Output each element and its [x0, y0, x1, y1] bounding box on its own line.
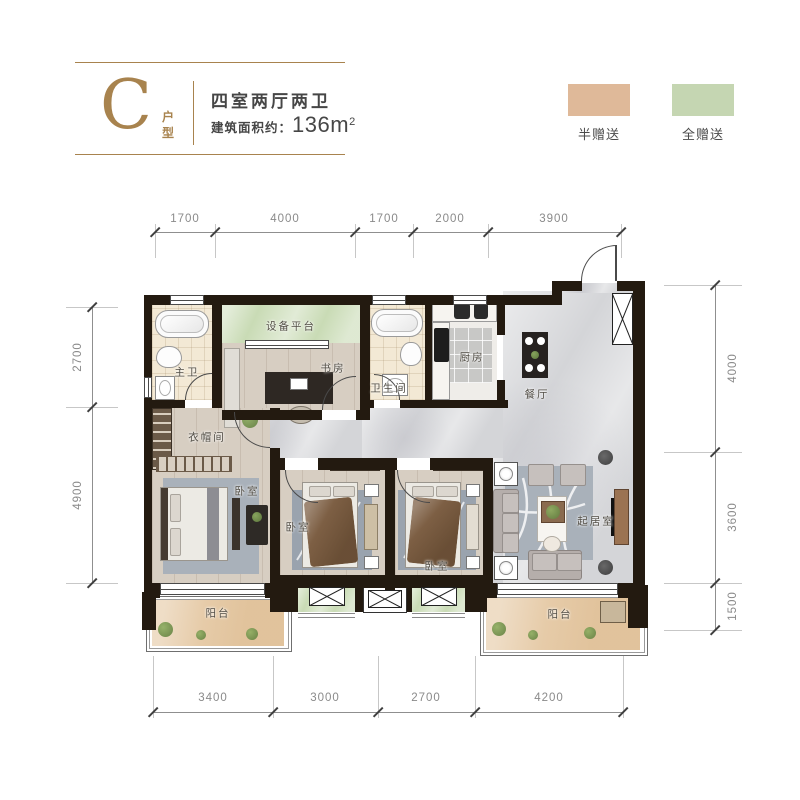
sofa-left: [493, 489, 519, 553]
room-label-kitchen: 厨房: [460, 350, 485, 365]
dim-label: 4000: [727, 353, 739, 383]
pillow: [170, 528, 181, 556]
sofa-bottom: [528, 550, 582, 580]
wall: [368, 400, 374, 408]
corridor-floor: [362, 408, 503, 458]
sofa-cushion: [502, 493, 519, 513]
lamp-table: [494, 462, 518, 486]
room-label-dining: 餐厅: [525, 387, 550, 402]
headboard: [161, 488, 168, 560]
tv-console: [614, 489, 629, 545]
balcony-cabinet: [600, 601, 626, 623]
sink-basin-2: [474, 303, 488, 319]
sink-basin-1: [454, 303, 470, 319]
plate: [537, 364, 545, 372]
wall: [355, 575, 363, 612]
dim-label: 4200: [534, 692, 564, 704]
dimension-line-right: [715, 285, 716, 630]
dim-label: 1700: [170, 213, 200, 225]
dimension-line-left: [92, 307, 93, 583]
extension-line: [664, 452, 742, 453]
lamp-table: [494, 556, 518, 580]
wall: [633, 281, 645, 601]
dimension-line-top: [155, 232, 621, 233]
wall: [150, 295, 555, 305]
room-label-equipment-platform: 设备平台: [266, 319, 316, 334]
room-label-study: 书房: [321, 361, 346, 376]
nightstand: [466, 484, 480, 497]
wall: [144, 295, 152, 600]
bed-throw: [207, 488, 219, 560]
plate: [525, 337, 533, 345]
nightstand: [466, 556, 480, 569]
crossed-box-icon: [309, 587, 345, 606]
pillow: [436, 486, 458, 497]
bed-master: [160, 487, 228, 561]
wall: [270, 448, 280, 595]
window: [245, 340, 329, 349]
ottoman: [543, 536, 561, 552]
extension-line: [664, 285, 742, 286]
room-label-bedroom3: 卧室: [425, 559, 450, 574]
balcony-door-window: [497, 583, 618, 595]
toilet-2: [400, 342, 422, 366]
dim-label: 2700: [72, 342, 84, 372]
extension-line: [664, 630, 742, 631]
balcony-plant: [584, 627, 596, 639]
wall: [558, 281, 582, 291]
window: [453, 295, 487, 305]
room-label-cloakroom: 衣帽间: [188, 430, 226, 445]
room-label-master-bath: 主卫: [175, 365, 200, 380]
sofa-cushion: [532, 553, 557, 571]
table-plant: [531, 351, 539, 359]
window: [170, 295, 204, 305]
balcony-plant: [196, 630, 206, 640]
window-sill: [298, 613, 355, 620]
floorplan-page: { "header": { "unit_letter": "C", "unit_…: [0, 0, 800, 800]
crossed-box-icon: [421, 587, 457, 606]
dim-label: 3900: [539, 213, 569, 225]
wall: [497, 380, 505, 408]
door-leaf-entry: [615, 245, 617, 281]
dim-label: 4000: [270, 213, 300, 225]
armchair: [560, 464, 586, 486]
wall: [142, 592, 156, 630]
balcony-plant: [492, 622, 506, 636]
door-arc-entry: [581, 245, 617, 281]
plant-dark: [598, 450, 613, 465]
room-label-master-bedroom: 卧室: [235, 484, 260, 499]
dim-label: 1700: [369, 213, 399, 225]
dim-label: 3000: [310, 692, 340, 704]
balcony-plant: [246, 628, 258, 640]
wall: [212, 295, 222, 408]
window: [144, 377, 152, 398]
plant-dark: [598, 560, 613, 575]
wall: [265, 583, 285, 598]
armchair: [528, 464, 554, 486]
wall: [356, 410, 370, 420]
bathtub-2: [371, 309, 423, 337]
plant: [252, 512, 262, 522]
blanket: [304, 497, 359, 568]
dim-label: 2700: [411, 692, 441, 704]
dim-label: 4900: [72, 480, 84, 510]
sofa-cushion: [502, 533, 519, 553]
ac-crossed-box-icon: [368, 590, 402, 608]
plate: [537, 337, 545, 345]
room-label-bathroom: 卫生间: [370, 381, 408, 396]
dim-label: 3600: [727, 502, 739, 532]
dim-label: 1500: [727, 591, 739, 621]
extension-line: [664, 583, 742, 584]
wall: [483, 583, 497, 598]
dim-label: 3400: [198, 692, 228, 704]
wall: [497, 295, 505, 335]
dimension-line-bottom: [153, 712, 623, 713]
balcony-plant: [158, 622, 173, 637]
monitor: [290, 378, 308, 390]
flue-crossed-box-icon: [612, 293, 633, 345]
nightstand: [364, 556, 379, 569]
room-label-balcony-left: 阳台: [206, 606, 231, 621]
balcony-door-window: [160, 583, 265, 595]
wall: [628, 585, 648, 628]
window-sill: [412, 613, 465, 620]
dining-table: [522, 332, 548, 378]
bed-bench: [232, 498, 240, 550]
room-label-bedroom2: 卧室: [286, 520, 311, 535]
bathtub: [155, 310, 209, 338]
balcony-plant: [528, 630, 538, 640]
sink: [155, 376, 175, 400]
nightstand: [364, 484, 379, 497]
wall: [144, 400, 185, 408]
wall: [425, 295, 432, 400]
dim-label: 2000: [435, 213, 465, 225]
wall: [270, 408, 280, 412]
dresser: [246, 505, 268, 545]
plate: [525, 364, 533, 372]
window: [372, 295, 406, 305]
wall: [318, 458, 397, 470]
wall: [407, 575, 412, 612]
bench-bedroom2: [364, 504, 378, 550]
plant: [546, 505, 560, 519]
pillow: [170, 494, 181, 522]
sofa-cushion: [502, 513, 519, 533]
closet-rail: [156, 456, 232, 472]
wall: [400, 400, 508, 408]
floor-plan: 主卫 设备平台 书房 卫生间 厨房 餐厅 衣帽间 卧室 卧室 卧室 起居室 阳台…: [0, 0, 800, 800]
room-label-living: 起居室: [577, 514, 615, 529]
pillow: [333, 486, 355, 497]
bench-bedroom3: [466, 504, 479, 550]
blanket: [407, 497, 462, 568]
wall: [280, 458, 285, 470]
gas-hob: [434, 328, 449, 362]
sofa-cushion: [557, 553, 582, 571]
room-label-balcony-right: 阳台: [548, 607, 573, 622]
